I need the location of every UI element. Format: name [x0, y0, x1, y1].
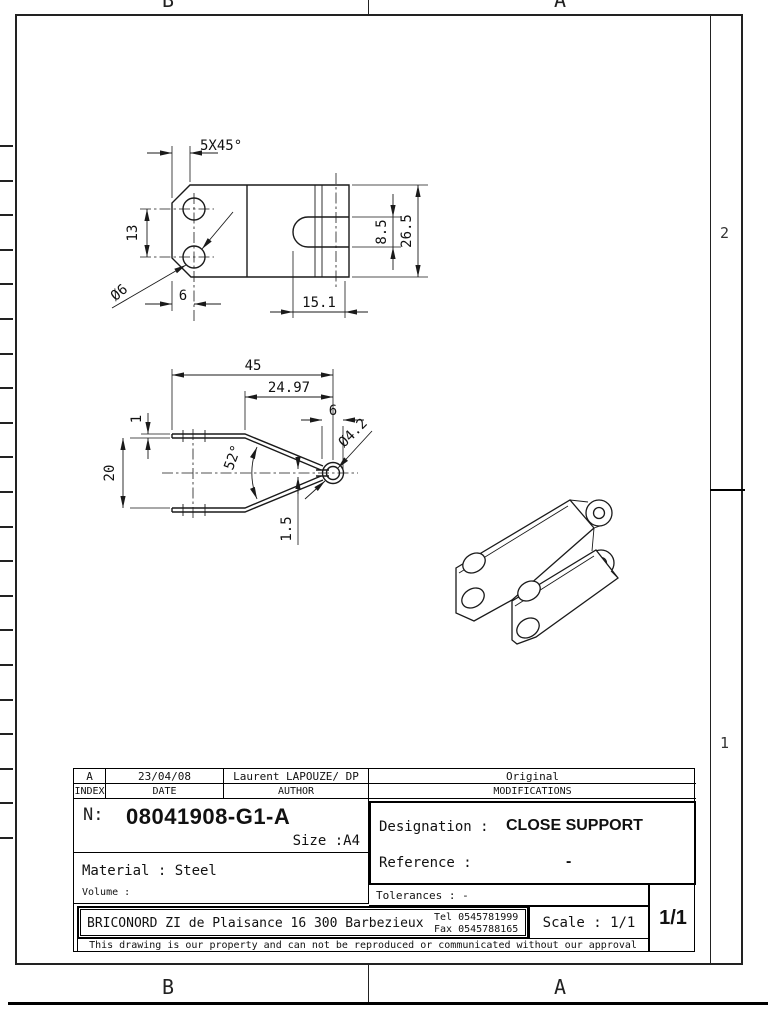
dim-loop-dia: Ø4.2 — [305, 416, 372, 499]
sheet-number: 1/1 — [659, 907, 687, 930]
disclaimer-row: This drawing is our property and can not… — [77, 939, 649, 952]
svg-text:1: 1 — [129, 415, 145, 423]
upper-plate — [172, 434, 323, 470]
svg-text:24.97: 24.97 — [268, 380, 310, 396]
number-label: N: — [83, 805, 103, 825]
reference-label: Reference : — [379, 855, 472, 871]
material-cell: Material : Steel Volume : — [74, 853, 369, 904]
dim-slot-gap: 1.5 — [279, 456, 298, 542]
sheet-number-cell: 1/1 — [649, 885, 696, 951]
reference-value: - — [566, 853, 571, 871]
iso-view — [456, 500, 618, 644]
top-view: 5X45° 13 Ø6 6 — [108, 138, 428, 322]
volume-label: Volume : — [82, 887, 130, 898]
disclaimer-text: This drawing is our property and can not… — [89, 940, 637, 951]
author-value-cell: Laurent LAPOUZE/ DP — [224, 769, 369, 784]
svg-text:52°: 52° — [221, 443, 245, 472]
svg-text:15.1: 15.1 — [302, 295, 336, 311]
svg-text:5X45°: 5X45° — [200, 138, 242, 154]
designation-label: Designation : — [379, 819, 489, 835]
svg-text:26.5: 26.5 — [399, 214, 415, 248]
part-number: 08041908-G1-A — [126, 804, 290, 830]
tolerances-cell: Tolerances : - — [369, 885, 649, 906]
modifications-label-cell: MODIFICATIONS — [369, 784, 696, 799]
company-box: BRICONORD ZI de Plaisance 16 300 Barbezi… — [77, 906, 529, 939]
dim-jaw-opening: 20 — [102, 438, 123, 508]
svg-text:8.5: 8.5 — [374, 219, 390, 244]
designation-box: Designation : CLOSE SUPPORT Reference : … — [369, 801, 696, 885]
lower-plate — [172, 476, 323, 512]
designation-value: CLOSE SUPPORT — [506, 817, 643, 835]
number-cell: N: 08041908-G1-A Size :A4 — [74, 799, 369, 853]
dim-plate-width: 26.5 — [399, 185, 418, 277]
dim-slot-depth: 15.1 — [270, 295, 368, 312]
scale-value: Scale : 1/1 — [543, 915, 636, 931]
scale-cell: Scale : 1/1 — [529, 906, 649, 939]
svg-text:6: 6 — [179, 288, 187, 304]
svg-text:45: 45 — [245, 358, 262, 374]
iso-hook-top-inner — [594, 508, 605, 519]
company-tel: Tel 0545781999 — [434, 912, 518, 923]
svg-text:6: 6 — [329, 403, 337, 419]
dim-loop-outer: 6 — [301, 403, 364, 420]
svg-text:1.5: 1.5 — [279, 516, 295, 541]
dim-thickness: 1 — [129, 413, 148, 459]
dim-overall-length: 45 — [172, 358, 333, 375]
tolerances-value: Tolerances : - — [376, 889, 469, 902]
dim-chamfer: 5X45° — [147, 138, 242, 154]
author-label-cell: AUTHOR — [224, 784, 369, 799]
index-value-cell: A — [74, 769, 106, 784]
dim-hole-edge-offset: 6 — [145, 288, 221, 304]
dim-hole-pitch: 13 — [125, 209, 147, 257]
svg-text:Ø4.2: Ø4.2 — [336, 416, 371, 451]
dim-angle: 52° — [221, 443, 257, 499]
slot — [293, 217, 349, 247]
company-address: BRICONORD ZI de Plaisance 16 300 Barbezi… — [87, 916, 424, 931]
date-label-cell: DATE — [106, 784, 224, 799]
svg-text:13: 13 — [125, 225, 141, 242]
material-value: Material : Steel — [82, 863, 217, 879]
dim-taper-length: 24.97 — [245, 380, 333, 397]
side-view: 45 24.97 6 1 20 — [102, 358, 372, 545]
modifications-value-cell: Original — [369, 769, 696, 784]
size-label: Size :A4 — [293, 833, 360, 849]
company-fax: Fax 0545788165 — [434, 924, 518, 935]
date-value-cell: 23/04/08 — [106, 769, 224, 784]
title-block: A 23/04/08 Laurent LAPOUZE/ DP Original … — [73, 768, 695, 952]
drawing-sheet: B A 2 1 B A — [0, 0, 768, 1024]
dim-slot-width: 8.5 — [374, 194, 393, 270]
svg-text:20: 20 — [102, 465, 118, 482]
svg-text:Ø6: Ø6 — [108, 281, 131, 304]
index-label-cell: INDEX — [74, 784, 106, 799]
